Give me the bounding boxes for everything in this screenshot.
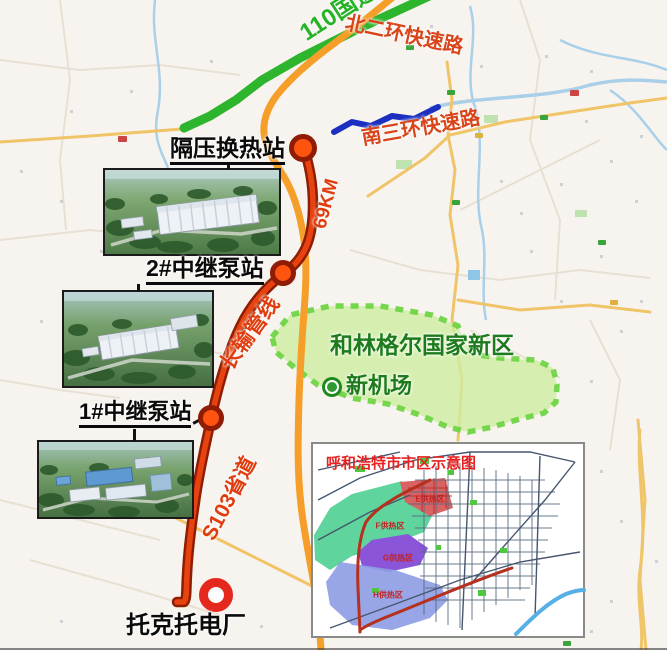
new-area-polygon	[272, 306, 557, 432]
pump-station-2-dot	[270, 260, 296, 286]
aerial-photo-heat-exchange-station	[103, 168, 281, 256]
inset-map-title: 呼和浩特市市区示意图	[326, 452, 476, 473]
aerial-photo-pump-station-1	[37, 440, 194, 519]
label-pump-station-1: 1#中继泵站	[79, 400, 191, 428]
label-new-area-name: 和林格尔国家新区	[330, 333, 514, 358]
photo-caption-strip	[105, 170, 279, 179]
inset-zone-label-f: F供热区	[376, 521, 405, 532]
photo-caption-strip	[64, 292, 212, 301]
label-new-airport: 新机场	[346, 374, 412, 398]
heat-exchange-station-dot	[289, 134, 317, 162]
aerial-photo-pump-station-2	[62, 290, 214, 388]
label-heat-exchange-station: 隔压换热站	[170, 136, 285, 165]
label-power-plant: 托克托电厂	[126, 613, 246, 640]
power-plant-dot	[199, 578, 233, 612]
inset-zone-label-g: G供热区	[383, 553, 413, 564]
lake	[468, 270, 480, 280]
inset-zone-label-h: H供热区	[373, 590, 403, 601]
inset-zone-label-e: E供热区	[415, 494, 444, 505]
new-airport-dot	[327, 382, 337, 392]
label-pump-station-2: 2#中继泵站	[146, 256, 264, 285]
photo-caption-strip	[39, 442, 192, 450]
pump-station-1-dot	[198, 405, 224, 431]
connector-pump2-photo	[137, 284, 140, 291]
pipeline-route-map: 110国道 北二环快速路 南三环快速路 69KM 长输管线 S103省道 隔压换…	[0, 0, 667, 650]
connector-pump1-photo	[133, 429, 136, 441]
